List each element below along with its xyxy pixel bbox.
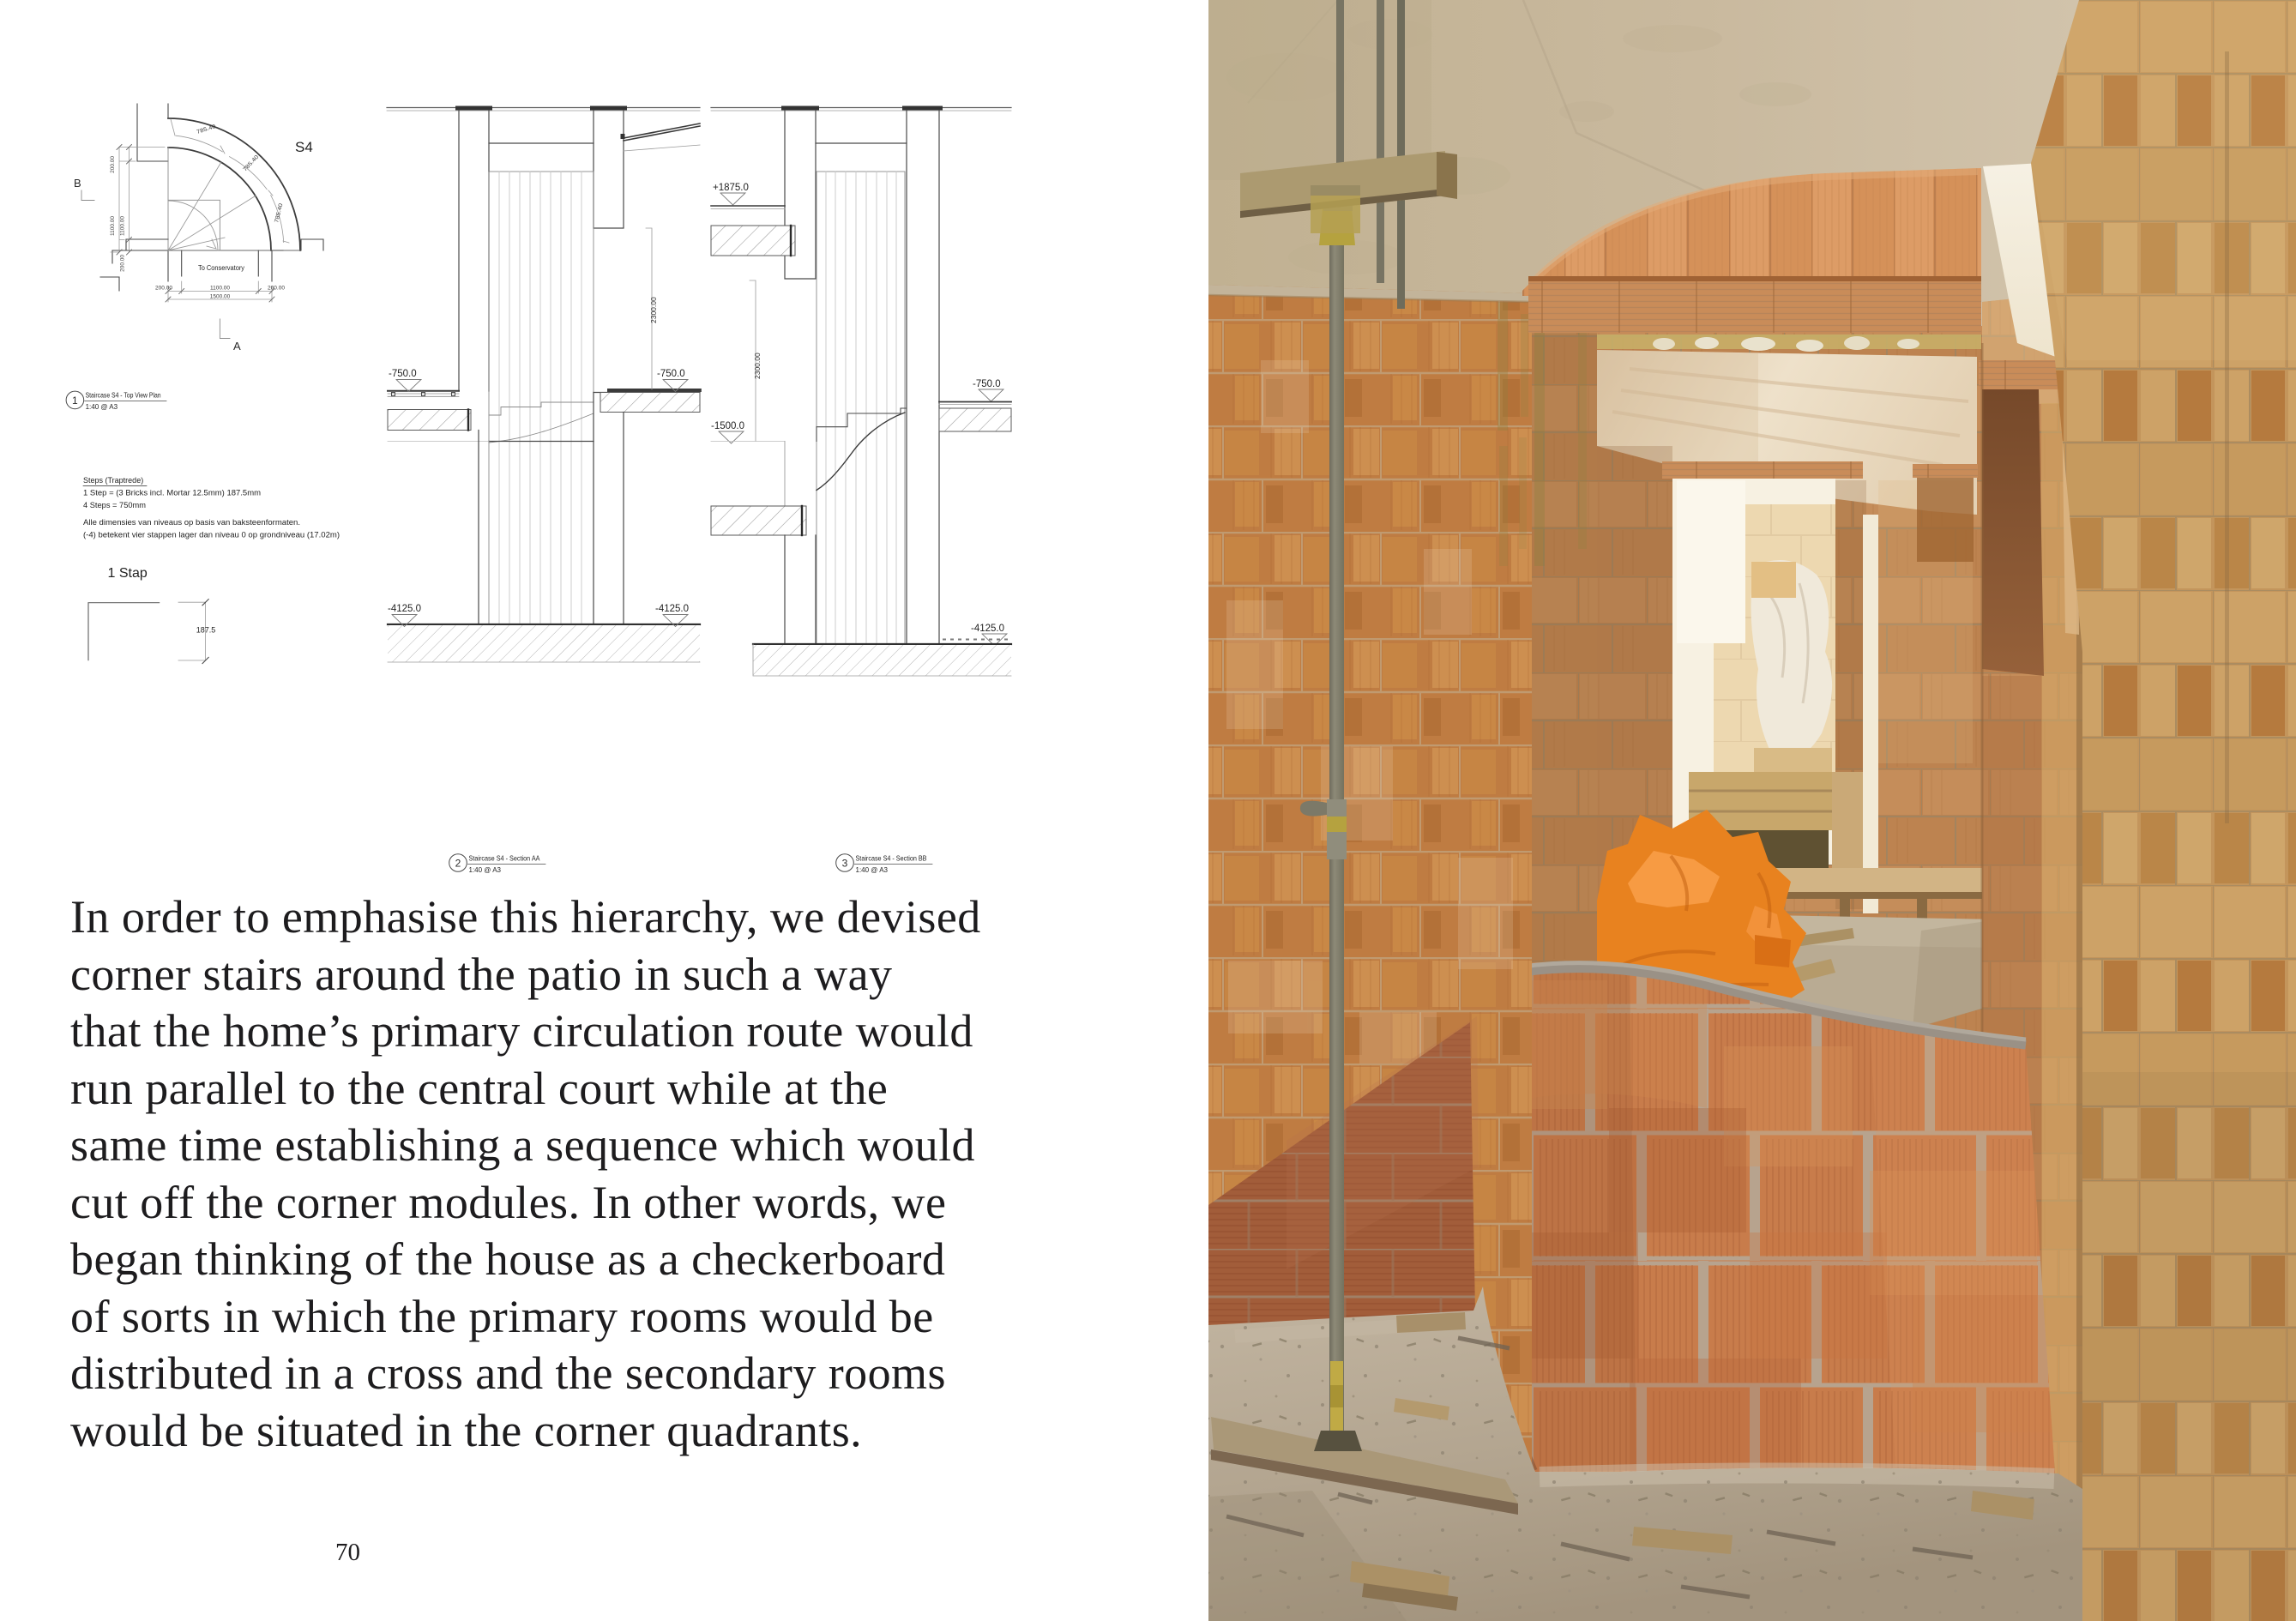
svg-text:1: 1 (72, 395, 78, 407)
svg-text:Staircase S4 - Top View Plan: Staircase S4 - Top View Plan (86, 392, 161, 400)
svg-text:1100.00: 1100.00 (120, 216, 126, 236)
svg-text:1:40 @ A3: 1:40 @ A3 (469, 866, 502, 874)
svg-text:187.5: 187.5 (196, 626, 216, 635)
svg-text:-750.0: -750.0 (973, 379, 1001, 389)
svg-text:-1500.0: -1500.0 (711, 421, 744, 431)
svg-text:-750.0: -750.0 (657, 369, 685, 379)
svg-text:1:40 @ A3: 1:40 @ A3 (86, 403, 118, 411)
svg-text:-750.0: -750.0 (389, 369, 417, 379)
svg-text:2300.00: 2300.00 (753, 353, 762, 379)
svg-text:785.40: 785.40 (242, 154, 260, 172)
svg-text:(-4) betekent vier stappen lag: (-4) betekent vier stappen lager dan niv… (83, 531, 340, 539)
svg-text:200.00: 200.00 (120, 255, 126, 272)
svg-text:1500.00: 1500.00 (210, 294, 231, 300)
svg-text:S4: S4 (295, 139, 313, 155)
svg-text:2: 2 (455, 858, 461, 870)
svg-text:+1875.0: +1875.0 (713, 183, 749, 193)
svg-text:B: B (74, 177, 81, 190)
svg-text:Staircase S4 - Section BB: Staircase S4 - Section BB (856, 855, 927, 863)
svg-text:1 Step = (3 Bricks incl. Morta: 1 Step = (3 Bricks incl. Mortar 12.5mm) … (83, 489, 261, 497)
svg-text:A: A (233, 340, 241, 353)
svg-text:1:40 @ A3: 1:40 @ A3 (856, 866, 889, 874)
svg-text:200.00: 200.00 (155, 286, 172, 292)
svg-text:1 Stap: 1 Stap (108, 566, 148, 581)
svg-text:-4125.0: -4125.0 (388, 604, 421, 614)
svg-text:4 Steps = 750mm: 4 Steps = 750mm (83, 501, 146, 509)
svg-text:Staircase S4 - Section AA: Staircase S4 - Section AA (469, 855, 541, 863)
svg-text:1100.00: 1100.00 (110, 216, 116, 236)
svg-text:Steps (Traptrede): Steps (Traptrede) (83, 476, 143, 485)
svg-text:3: 3 (842, 858, 848, 870)
svg-text:2300.00: 2300.00 (649, 297, 658, 323)
svg-text:-4125.0: -4125.0 (655, 604, 689, 614)
svg-text:200.00: 200.00 (268, 286, 285, 292)
svg-text:Alle dimensies van niveaus op: Alle dimensies van niveaus op basis van … (83, 518, 300, 527)
svg-text:-4125.0: -4125.0 (971, 624, 1004, 634)
svg-text:1100.00: 1100.00 (210, 286, 230, 292)
svg-text:785.40: 785.40 (196, 124, 216, 136)
svg-text:To Conservatory: To Conservatory (198, 263, 245, 272)
svg-text:200.00: 200.00 (110, 156, 116, 173)
